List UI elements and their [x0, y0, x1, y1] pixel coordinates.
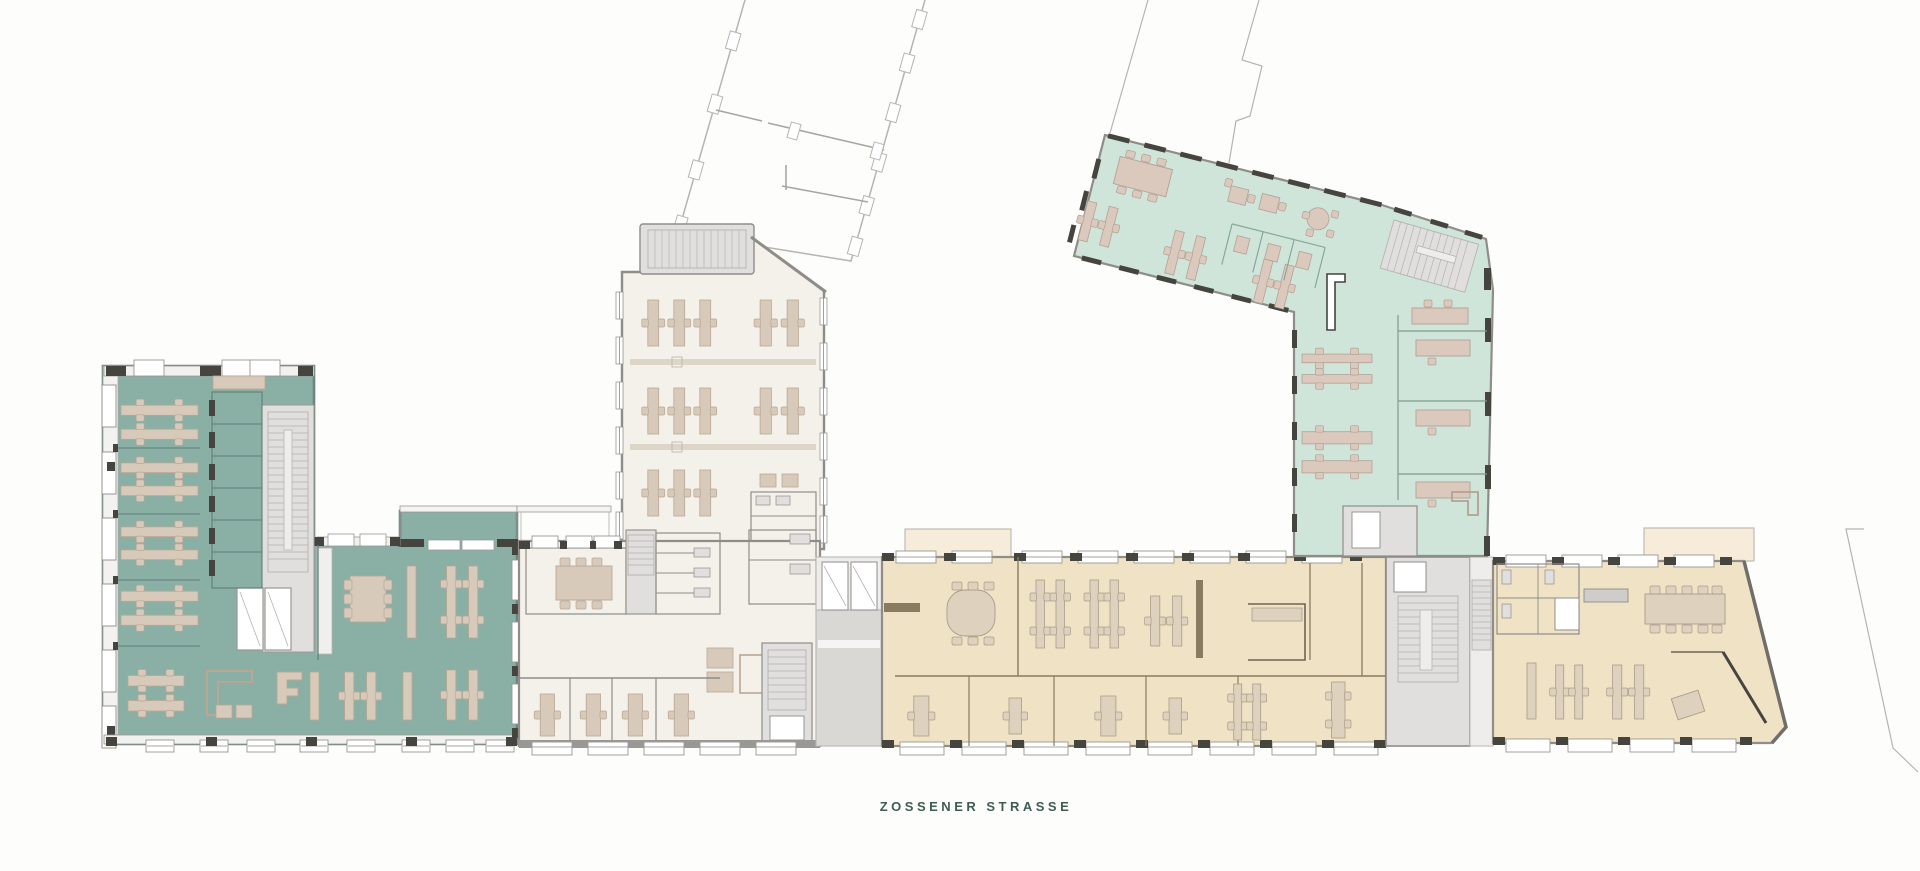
svg-text:ZOSSENER STRASSE: ZOSSENER STRASSE	[880, 799, 1073, 814]
